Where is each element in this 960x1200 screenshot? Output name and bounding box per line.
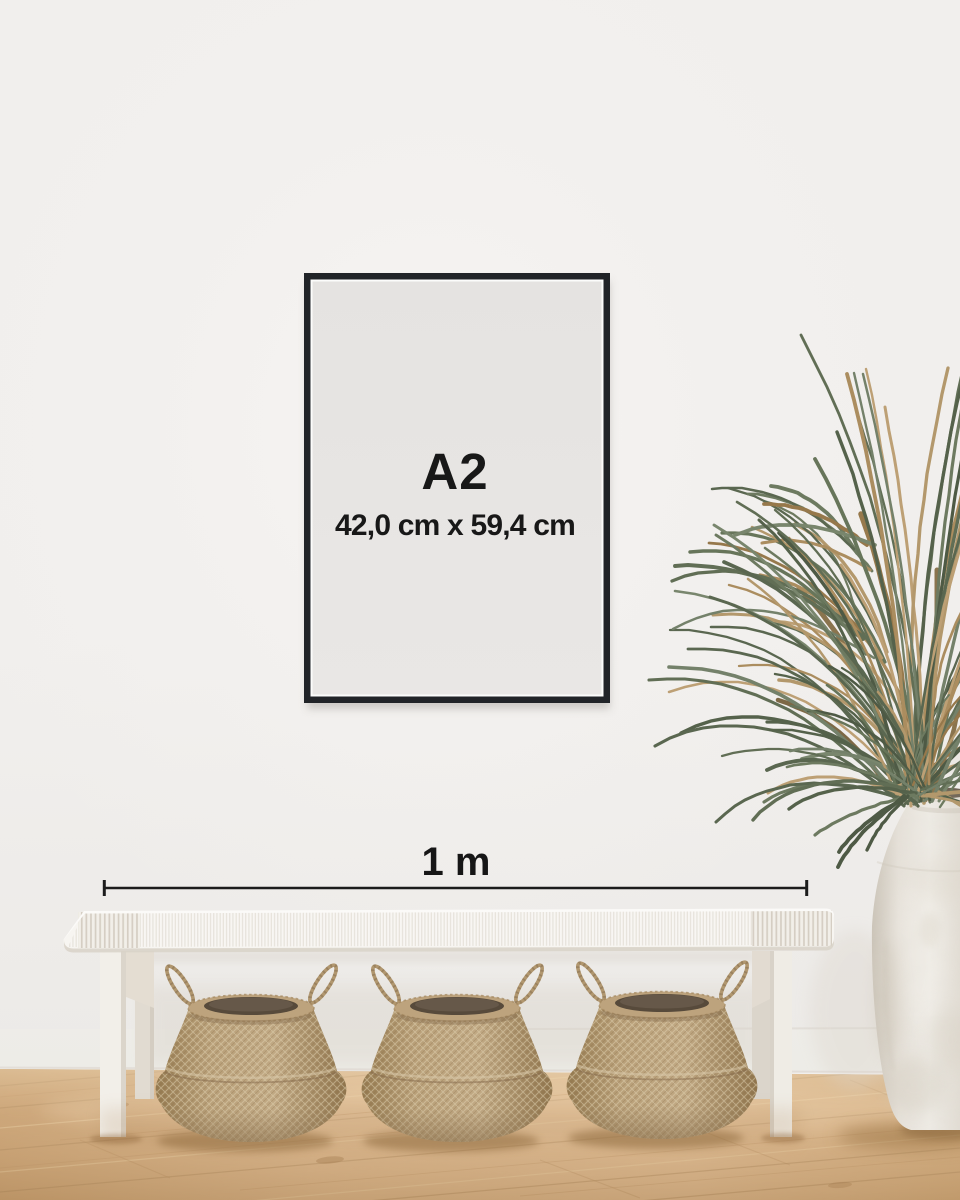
svg-text:1 m: 1 m: [422, 840, 491, 884]
svg-text:42,0 cm x 59,4 cm: 42,0 cm x 59,4 cm: [335, 509, 575, 542]
svg-text:A2: A2: [421, 443, 488, 500]
